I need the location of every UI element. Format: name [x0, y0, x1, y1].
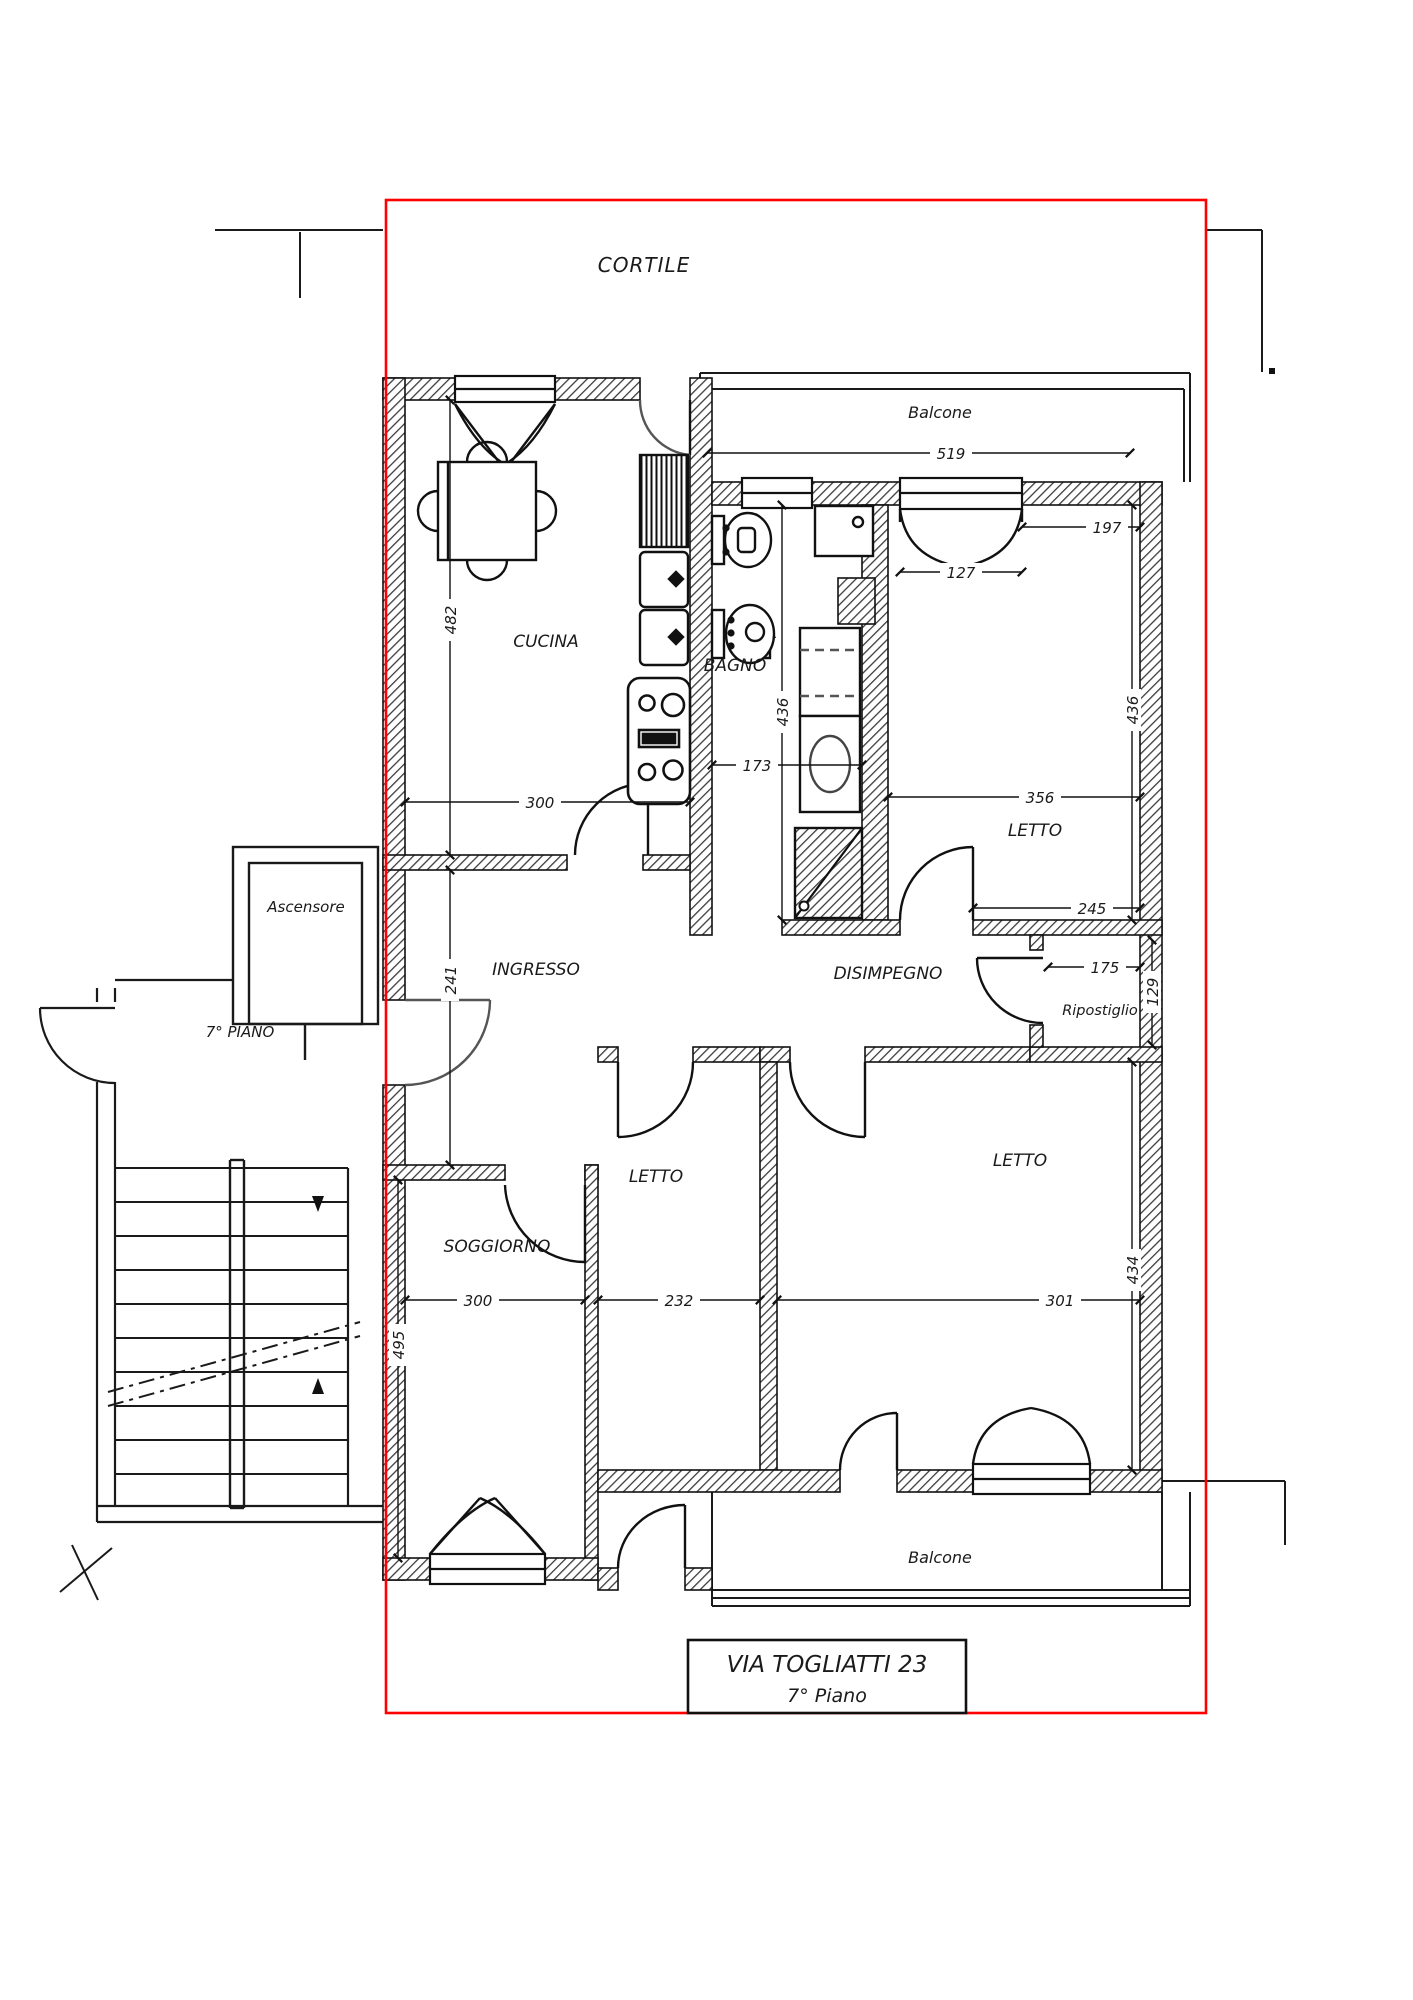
bedroom-right-label: LETTO — [993, 1151, 1047, 1171]
washbasin — [815, 506, 873, 556]
kitchen-units — [640, 552, 688, 665]
washing-machine — [800, 716, 860, 812]
bedroom-top-label: LETTO — [1008, 821, 1062, 841]
stair-treads — [115, 1168, 348, 1474]
title-floor: 7° Piano — [787, 1685, 867, 1707]
wall-bedroom2-top-1 — [598, 1047, 618, 1062]
toilet — [712, 513, 771, 567]
bidet — [712, 605, 774, 663]
wall-transition-2 — [685, 1568, 712, 1590]
wall-kitchen-bottom-2 — [643, 855, 690, 870]
wall-bedroom2-bedroom3 — [760, 1062, 777, 1470]
wall-living-bottom-2 — [545, 1558, 598, 1580]
entry-hall-label: INGRESSO — [492, 960, 580, 980]
dim-300-kitchen: 300 — [526, 794, 555, 812]
wall-bedrooms-bottom-2 — [897, 1470, 973, 1492]
dim-173: 173 — [743, 757, 772, 775]
wall-storage-bottom — [1030, 1047, 1162, 1062]
wall-corridor-top-2 — [973, 920, 1162, 935]
bathroom-label: BAGNO — [704, 656, 767, 676]
living-room-label: SOGGIORNO — [444, 1237, 551, 1257]
balcony-top-label: Balcone — [908, 403, 972, 422]
wall-living-top-1 — [383, 1165, 505, 1180]
landing-floor-label: 7° PIANO — [206, 1023, 275, 1041]
wall-storage-left-stub1 — [1030, 935, 1043, 950]
wall-balcony-seg1 — [712, 482, 742, 505]
balcony-top-outline — [700, 373, 1190, 482]
room-labels: CORTILE Balcone CUCINA BAGNO LETTO INGRE… — [444, 253, 1138, 1567]
wall-living-bottom-1 — [383, 1558, 430, 1580]
dim-482: 482 — [442, 606, 460, 635]
wall-balcony-seg2 — [812, 482, 900, 505]
stair-direction-arrows — [312, 1196, 324, 1394]
bathroom-cabinet — [800, 628, 860, 716]
kitchen-sink-unit — [640, 455, 688, 547]
dim-300-living: 300 — [464, 1292, 493, 1310]
storage-label: Ripostiglio — [1062, 1003, 1138, 1019]
wall-corridor-bottom-2 — [865, 1047, 1030, 1062]
title-address: VIA TOGLIATTI 23 — [727, 1652, 928, 1678]
dim-356: 356 — [1026, 789, 1055, 807]
dim-129: 129 — [1144, 978, 1162, 1007]
wall-corridor-top-1 — [782, 920, 900, 935]
shower — [795, 828, 862, 918]
kitchen-label: CUCINA — [513, 632, 579, 652]
dim-495: 495 — [390, 1331, 408, 1360]
wall-kitchen-bottom-1 — [383, 855, 567, 870]
corridor-label: DISIMPEGNO — [834, 964, 943, 984]
neighbour-context-lines — [215, 230, 1285, 1545]
wall-bedrooms-bottom-1 — [598, 1470, 840, 1492]
bathroom-pillar — [838, 578, 875, 624]
wall-transition-1 — [598, 1568, 618, 1590]
dim-127: 127 — [947, 564, 976, 582]
courtyard-label: CORTILE — [598, 253, 691, 277]
wall-bedroom2-top-2 — [693, 1047, 760, 1062]
section-cut-mark — [60, 1545, 112, 1600]
dim-434: 434 — [1124, 1256, 1142, 1285]
corner-dot — [1269, 368, 1275, 374]
landing-door-swing — [40, 1008, 115, 1083]
wall-bedrooms-bottom-3 — [1090, 1470, 1162, 1492]
wall-storage-left-stub2 — [1030, 1025, 1043, 1047]
wall-kitchen-top-right — [555, 378, 640, 400]
dim-519: 519 — [937, 445, 966, 463]
dim-197: 197 — [1093, 519, 1122, 537]
dim-436-bath: 436 — [774, 698, 792, 727]
balcony-bottom-label: Balcone — [908, 1548, 972, 1567]
floor-plan-drawing: Ascensore 7° PIANO — [0, 0, 1413, 2000]
stair-divider — [230, 1160, 244, 1508]
title-box: VIA TOGLIATTI 23 7° Piano — [688, 1640, 966, 1713]
dim-241: 241 — [442, 966, 460, 995]
wall-corridor-bottom-1 — [760, 1047, 790, 1062]
dim-301: 301 — [1046, 1292, 1075, 1310]
kitchen-stove — [628, 678, 690, 804]
dim-436-bed: 436 — [1124, 696, 1142, 725]
dim-175: 175 — [1091, 959, 1120, 977]
elevator-label: Ascensore — [266, 898, 344, 916]
floor-plan-page: Ascensore 7° PIANO — [0, 0, 1413, 2000]
kitchen-table — [418, 442, 556, 580]
wall-bathroom-bedroom — [862, 505, 888, 920]
bedroom-mid-label: LETTO — [629, 1167, 683, 1187]
dim-232: 232 — [665, 1292, 694, 1310]
dim-245: 245 — [1078, 900, 1107, 918]
wall-living-bedroom2 — [585, 1165, 598, 1580]
